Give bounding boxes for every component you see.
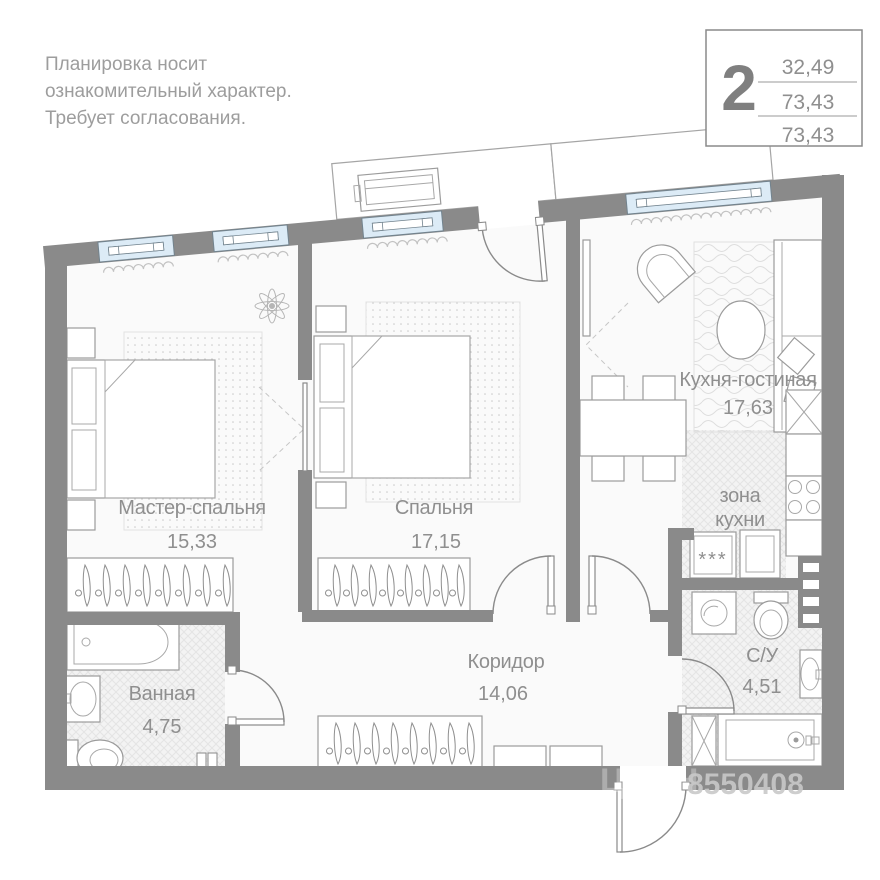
area-full: 73,43 (782, 124, 835, 147)
watermark: ЦИАН 8550408 (600, 762, 804, 801)
bathroom-sink-icon (64, 676, 100, 722)
wc-toilet-icon (754, 592, 788, 639)
bathroom-area: 4,75 (143, 716, 182, 738)
counter (786, 434, 822, 476)
nightstand (67, 328, 95, 358)
kitchen-zone-label-2: кухни (715, 509, 765, 531)
bedroom-wardrobe (318, 558, 470, 612)
bed (314, 336, 470, 478)
shower-icon (718, 714, 822, 766)
dining-table (580, 400, 686, 456)
bed (67, 360, 215, 498)
chair (643, 456, 675, 481)
area-living: 32,49 (782, 56, 835, 79)
bedroom-label: Спальня (395, 497, 473, 519)
washing-machine-icon (692, 592, 736, 634)
nightstand (316, 306, 346, 332)
master-wardrobe (67, 558, 233, 612)
corridor-wardrobe (318, 716, 482, 770)
watermark-id: 8550408 (687, 768, 804, 801)
vent-shaft (798, 556, 824, 628)
floor-plan-drawing: *** (0, 0, 880, 880)
counter (786, 520, 822, 556)
stove-icon (786, 476, 822, 520)
chair (643, 376, 675, 401)
freezer-stars: *** (698, 549, 727, 571)
kitchen-living-area: 17,63 (723, 397, 773, 419)
kitchen-living-label: Кухня-гостиная (679, 369, 816, 391)
master-bedroom-label: Мастер-спальня (118, 497, 266, 519)
bedroom-area: 17,15 (411, 531, 461, 553)
disclaimer: Планировка носит ознакомительный характе… (45, 54, 292, 129)
wall-pilaster (583, 240, 590, 336)
bedroom-furniture (314, 306, 470, 508)
sink-cabinet (740, 530, 780, 578)
wc-area: 4,51 (743, 676, 782, 698)
nightstand (67, 500, 95, 530)
wc-label: С/У (746, 645, 778, 667)
floor-plan-page: *** (0, 0, 880, 880)
disclaimer-line-2: ознакомительный характер. (45, 81, 292, 102)
area-total: 73,43 (782, 91, 835, 114)
wc-sink-icon (800, 650, 823, 698)
bathroom-label: Ванная (129, 683, 196, 705)
chair (592, 456, 624, 481)
nightstand (316, 482, 346, 508)
watermark-brand: ЦИАН (600, 762, 698, 800)
sliding-door-leaf (303, 383, 307, 471)
master-bedroom-area: 15,33 (167, 531, 217, 553)
duct-box (692, 716, 716, 766)
corridor-label: Коридор (468, 651, 545, 673)
chair (592, 376, 624, 401)
corridor-area: 14,06 (478, 683, 528, 705)
coffee-table (717, 301, 765, 359)
info-box: 2 32,49 73,43 73,43 (706, 30, 862, 147)
kitchen-zone-label-1: зона (719, 485, 761, 507)
fridge-icon: *** (690, 532, 736, 578)
disclaimer-line-3: Требует согласования. (45, 108, 246, 129)
room-count: 2 (721, 52, 757, 124)
ac-unit-icon (353, 168, 441, 212)
disclaimer-line-1: Планировка носит (45, 54, 207, 75)
